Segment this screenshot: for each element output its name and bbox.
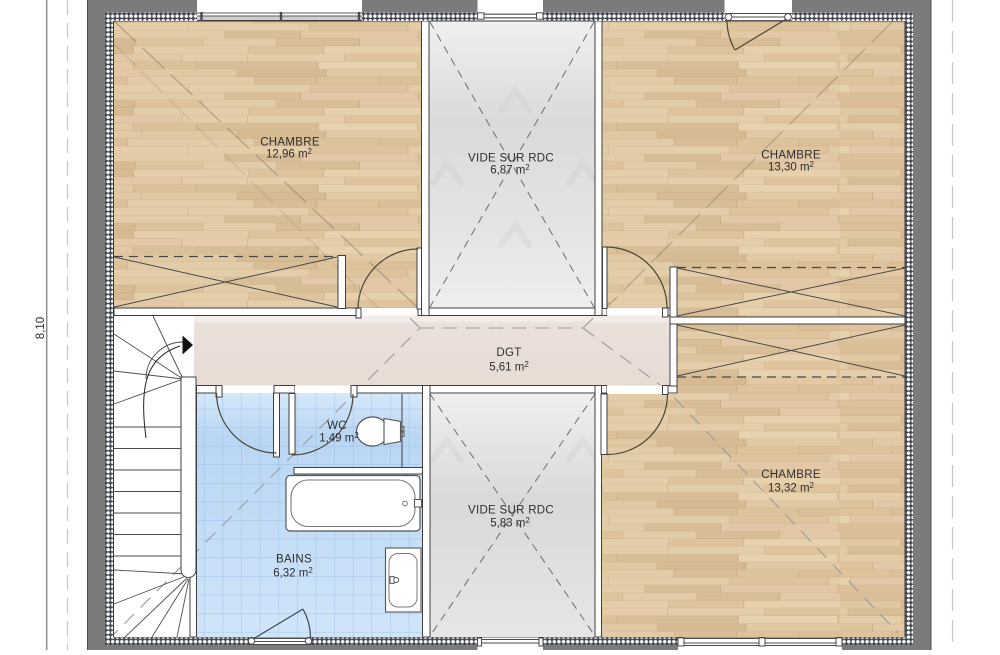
- svg-text:13,32 m2: 13,32 m2: [768, 481, 815, 495]
- svg-text:VIDE SUR RDC: VIDE SUR RDC: [468, 505, 554, 517]
- svg-text:5,83 m2: 5,83 m2: [490, 516, 530, 530]
- svg-text:DGT: DGT: [496, 347, 521, 359]
- svg-text:8,10: 8,10: [35, 317, 47, 339]
- svg-text:5,61 m2: 5,61 m2: [489, 360, 529, 374]
- svg-text:12,96 m2: 12,96 m2: [266, 147, 313, 161]
- svg-text:CHAMBRE: CHAMBRE: [761, 469, 821, 481]
- svg-text:6,87 m2: 6,87 m2: [490, 163, 530, 177]
- svg-text:1,49 m2: 1,49 m2: [319, 431, 359, 445]
- svg-text:13,30 m2: 13,30 m2: [768, 160, 815, 174]
- svg-text:6,32 m2: 6,32 m2: [273, 566, 313, 580]
- svg-text:VIDE SUR RDC: VIDE SUR RDC: [468, 153, 554, 165]
- svg-text:BAINS: BAINS: [276, 554, 312, 566]
- svg-text:WC: WC: [327, 420, 347, 432]
